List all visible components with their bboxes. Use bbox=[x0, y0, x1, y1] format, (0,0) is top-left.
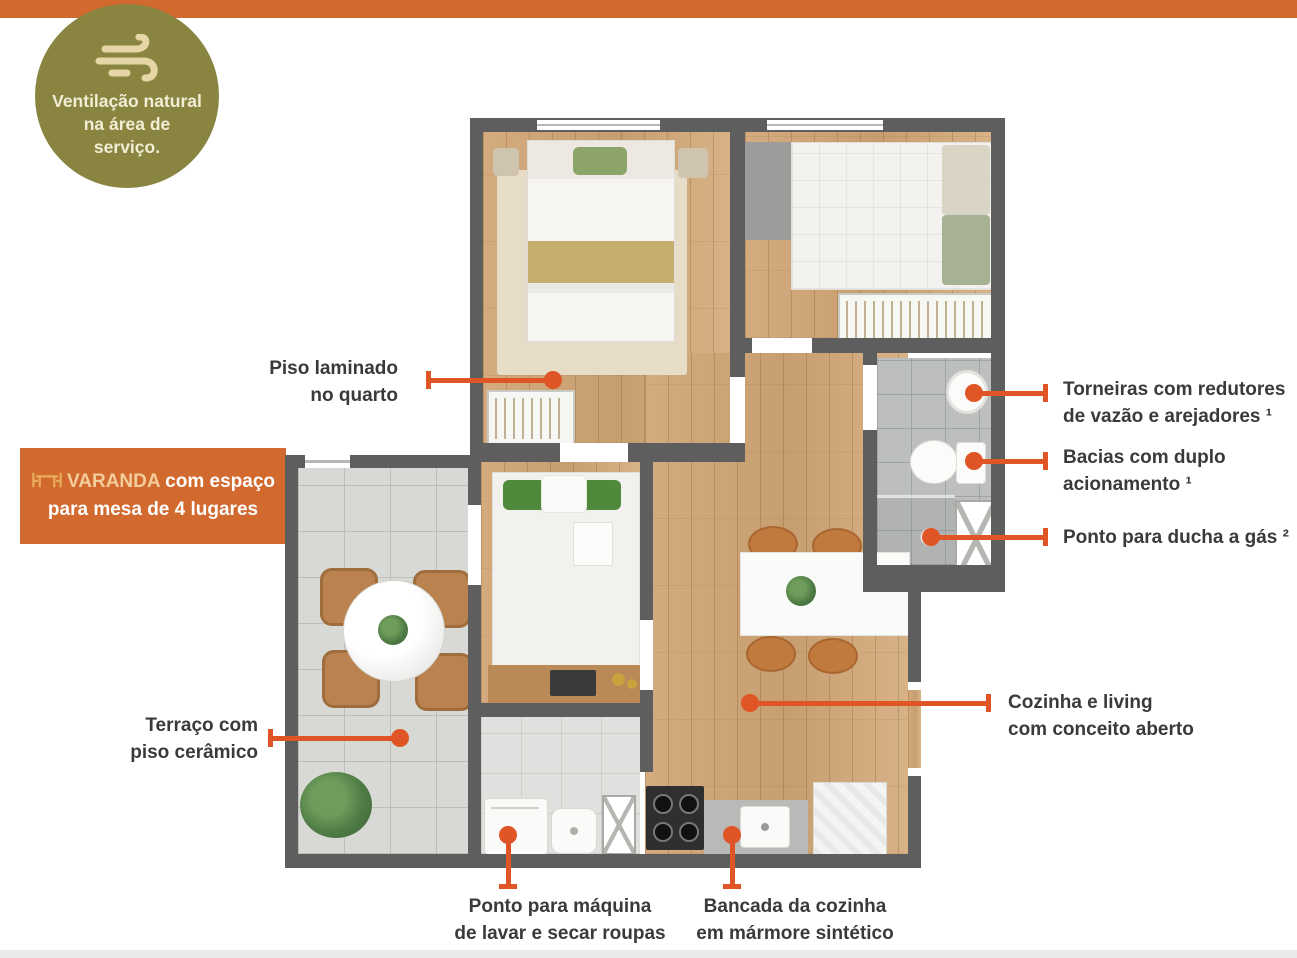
fridge bbox=[813, 782, 887, 855]
entry-door-jamb-bottom bbox=[908, 768, 921, 776]
sofa-bed bbox=[492, 472, 640, 666]
leader-maquina-cap bbox=[499, 884, 517, 889]
nightstand-right bbox=[678, 148, 708, 178]
wall-bedroom2-bottom-a bbox=[745, 338, 752, 353]
ventilation-badge: Ventilação natural na área de serviço. bbox=[35, 4, 219, 188]
bedside-shelf bbox=[573, 522, 613, 566]
bottom-edge-strip bbox=[0, 950, 1297, 958]
washing-machine bbox=[484, 798, 548, 855]
terrace-plant bbox=[300, 772, 372, 838]
badge-text-line1: Ventilação natural bbox=[52, 91, 202, 111]
leader-ducha-line bbox=[931, 535, 1046, 540]
wall-bottom bbox=[285, 854, 921, 868]
double-bed bbox=[527, 140, 675, 342]
green-pillow bbox=[573, 147, 627, 175]
leader-torneiras-dot bbox=[965, 384, 983, 402]
callout-ducha: Ponto para ducha a gás ² bbox=[1063, 524, 1297, 551]
laptop bbox=[550, 670, 596, 696]
wall-kitchen-stub bbox=[640, 717, 653, 772]
callout-maquina-line2: de lavar e secar roupas bbox=[430, 920, 690, 947]
wall-left-upper bbox=[470, 118, 483, 447]
table-chairs-icon bbox=[31, 470, 63, 490]
wall-left-lower bbox=[285, 455, 298, 868]
entry-door-jamb-top bbox=[908, 682, 921, 690]
leader-cozinha-dot bbox=[741, 694, 759, 712]
callout-torneiras-line1: Torneiras com redutores bbox=[1063, 376, 1293, 403]
wall-bedroom2-bottom-b bbox=[812, 338, 991, 353]
gold-decor bbox=[612, 673, 625, 686]
bed-blanket bbox=[942, 145, 990, 215]
callout-maquina-line1: Ponto para máquina bbox=[430, 893, 690, 920]
callout-maquina: Ponto para máquina de lavar e secar roup… bbox=[430, 893, 690, 947]
door-bedroom3-top bbox=[560, 443, 628, 462]
white-pillow bbox=[541, 475, 587, 513]
callout-ducha-line1: Ponto para ducha a gás ² bbox=[1063, 524, 1297, 551]
kitchen-sink bbox=[740, 806, 790, 848]
bedroom1-wardrobe bbox=[487, 390, 575, 447]
window-terrace bbox=[305, 456, 350, 467]
callout-bacias-line2: acionamento ¹ bbox=[1063, 471, 1293, 498]
bedroom3-desk bbox=[488, 665, 642, 703]
wall-terrace-right-a bbox=[468, 455, 481, 505]
bed-cushions bbox=[942, 215, 990, 285]
bedroom2-desk bbox=[741, 142, 791, 240]
window-bedroom1 bbox=[537, 120, 660, 130]
banner-line2: para mesa de 4 lugares bbox=[20, 496, 286, 524]
door-bedroom1 bbox=[730, 377, 745, 443]
callout-bacias-line1: Bacias com duplo bbox=[1063, 444, 1293, 471]
callout-cozinha: Cozinha e living com conceito aberto bbox=[1008, 689, 1248, 743]
wall-bath-left-b bbox=[863, 430, 877, 565]
badge-text-line3: serviço. bbox=[52, 136, 202, 159]
callout-bancada-line2: em mármore sintético bbox=[665, 920, 925, 947]
gold-decor-small bbox=[627, 679, 637, 689]
toilet bbox=[910, 440, 958, 484]
wall-right-lower-b bbox=[908, 770, 921, 868]
callout-bancada-line1: Bancada da cozinha bbox=[665, 893, 925, 920]
wall-bedroom3-bottom bbox=[468, 703, 653, 717]
wall-service-band bbox=[863, 565, 1005, 592]
leader-bacias-dot bbox=[965, 452, 983, 470]
leader-cozinha-line bbox=[750, 701, 988, 706]
wind-icon bbox=[91, 34, 163, 84]
callout-torneiras-line2: de vazão e arejadores ¹ bbox=[1063, 403, 1293, 430]
banner-line1-rest: com espaço bbox=[160, 471, 275, 492]
window-bedroom2 bbox=[767, 120, 883, 130]
banner-brand: VARANDA bbox=[67, 471, 160, 492]
wall-bedroom1-right bbox=[730, 132, 745, 377]
leader-piso-dot bbox=[544, 371, 562, 389]
bed-gold-stripe bbox=[528, 241, 674, 283]
callout-piso-line1: Piso laminado bbox=[228, 355, 398, 382]
wall-bedroom3-right-a bbox=[640, 443, 653, 620]
bed-foot-fold bbox=[528, 283, 674, 293]
wall-terrace-top-b bbox=[350, 455, 470, 468]
wall-bath-left-a bbox=[863, 353, 877, 365]
leader-bacias-line bbox=[974, 459, 1046, 464]
dining-plant bbox=[786, 576, 816, 606]
wall-terrace-right-b bbox=[468, 585, 481, 854]
top-accent-bar bbox=[0, 0, 1297, 18]
door-bedroom3-side bbox=[640, 620, 653, 690]
callout-bancada: Bancada da cozinha em mármore sintético bbox=[665, 893, 925, 947]
wall-right-lower-a bbox=[908, 592, 921, 688]
leader-bancada-cap bbox=[723, 884, 741, 889]
wall-bedroom1-bottom-a bbox=[470, 443, 560, 462]
leader-torneiras-cap bbox=[1043, 384, 1048, 402]
leader-ducha-dot bbox=[922, 528, 940, 546]
leader-terraco-cap bbox=[268, 729, 273, 747]
leader-torneiras-line bbox=[974, 391, 1046, 396]
badge-text-line2: na área de bbox=[52, 113, 202, 136]
callout-cozinha-line1: Cozinha e living bbox=[1008, 689, 1248, 716]
callout-piso-line2: no quarto bbox=[228, 382, 398, 409]
callout-piso-laminado: Piso laminado no quarto bbox=[228, 355, 398, 409]
callout-terraco-line1: Terraço com bbox=[108, 712, 258, 739]
leader-terraco-line bbox=[270, 736, 400, 741]
door-terrace bbox=[468, 505, 481, 585]
leader-bancada-dot bbox=[723, 826, 741, 844]
wall-right-outer bbox=[991, 118, 1005, 592]
leader-bacias-cap bbox=[1043, 452, 1048, 470]
leader-terraco-dot bbox=[391, 729, 409, 747]
callout-terraco: Terraço com piso cerâmico bbox=[108, 712, 258, 766]
leader-piso-line bbox=[428, 378, 553, 383]
single-bed bbox=[791, 142, 993, 290]
callout-terraco-line2: piso cerâmico bbox=[108, 739, 258, 766]
leader-piso-cap bbox=[426, 371, 431, 389]
dining-chair-3 bbox=[746, 636, 796, 672]
varanda-banner: VARANDA com espaço para mesa de 4 lugare… bbox=[20, 448, 286, 544]
nightstand-left bbox=[493, 148, 519, 176]
callout-cozinha-line2: com conceito aberto bbox=[1008, 716, 1248, 743]
stove bbox=[646, 786, 704, 850]
door-bathroom bbox=[863, 365, 877, 430]
laundry-tub bbox=[551, 808, 597, 854]
callout-bacias: Bacias com duplo acionamento ¹ bbox=[1063, 444, 1293, 498]
table-plant bbox=[378, 615, 408, 645]
door-bedroom2 bbox=[752, 338, 812, 353]
leader-maquina-dot bbox=[499, 826, 517, 844]
leader-cozinha-cap bbox=[986, 694, 991, 712]
callout-torneiras: Torneiras com redutores de vazão e areja… bbox=[1063, 376, 1293, 430]
leader-ducha-cap bbox=[1043, 528, 1048, 546]
laundry-window bbox=[602, 795, 636, 855]
dining-chair-4 bbox=[808, 638, 858, 674]
banner-line1: VARANDA com espaço bbox=[20, 468, 286, 496]
